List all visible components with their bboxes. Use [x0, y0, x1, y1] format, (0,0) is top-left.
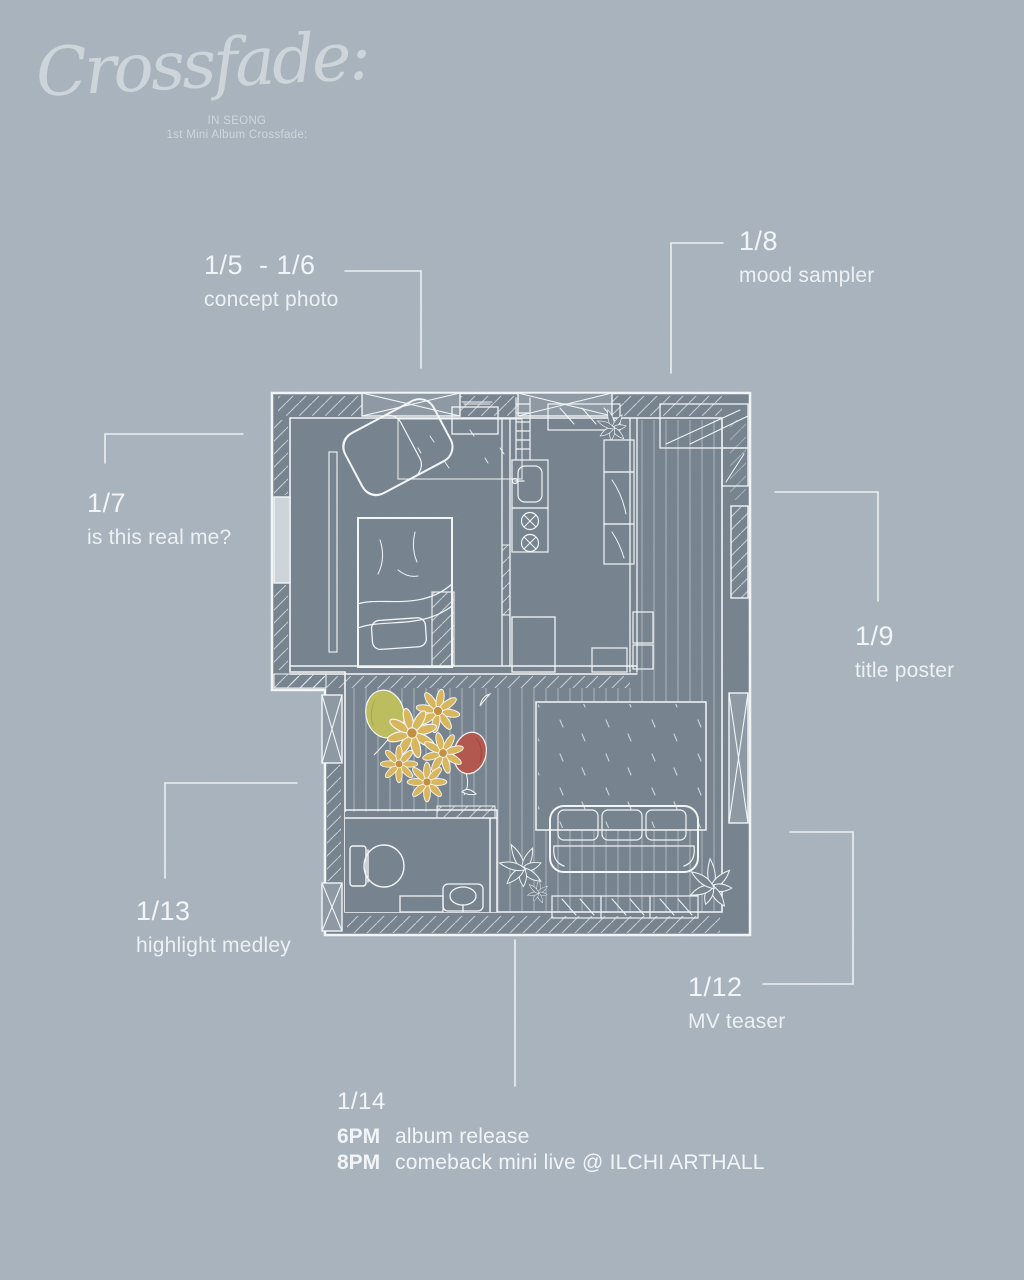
callout-date: 1/12 [688, 972, 786, 1003]
callout-date: 1/8 [739, 226, 874, 257]
release-date: 1/14 [337, 1088, 765, 1116]
callout-date: 1/9 [855, 621, 954, 652]
callout-title-poster: 1/9 title poster [855, 621, 954, 683]
callout-is-this-real-me: 1/7 is this real me? [87, 488, 231, 550]
release-event: 8PM comeback mini live @ ILCHI ARTHALL [337, 1150, 765, 1176]
event-label: comeback mini live @ ILCHI ARTHALL [395, 1150, 765, 1176]
event-label: album release [395, 1124, 530, 1150]
release-event: 6PM album release [337, 1124, 765, 1150]
release-schedule: 1/14 6PM album release 8PM comeback mini… [337, 1088, 765, 1176]
event-time: 8PM [337, 1150, 395, 1176]
callout-date: 1/13 [136, 896, 291, 927]
callout-label: is this real me? [87, 526, 231, 550]
album-name: 1st Mini Album Crossfade: [152, 128, 322, 142]
callout-label: concept photo [204, 288, 339, 312]
callout-label: MV teaser [688, 1010, 786, 1034]
callout-label: title poster [855, 659, 954, 683]
event-time: 6PM [337, 1124, 395, 1150]
callout-date: 1/5 - 1/6 [204, 250, 339, 281]
callout-date: 1/7 [87, 488, 231, 519]
poster: { "logo": { "title": "Crossfade:", "arti… [0, 0, 1024, 1280]
callout-highlight-medley: 1/13 highlight medley [136, 896, 291, 958]
callout-label: highlight medley [136, 934, 291, 958]
callout-mood-sampler: 1/8 mood sampler [739, 226, 874, 288]
callout-label: mood sampler [739, 264, 874, 288]
callout-concept-photo: 1/5 - 1/6 concept photo [204, 250, 339, 312]
callout-mv-teaser: 1/12 MV teaser [688, 972, 786, 1034]
album-credit: IN SEONG 1st Mini Album Crossfade: [152, 114, 322, 142]
artist-name: IN SEONG [152, 114, 322, 128]
